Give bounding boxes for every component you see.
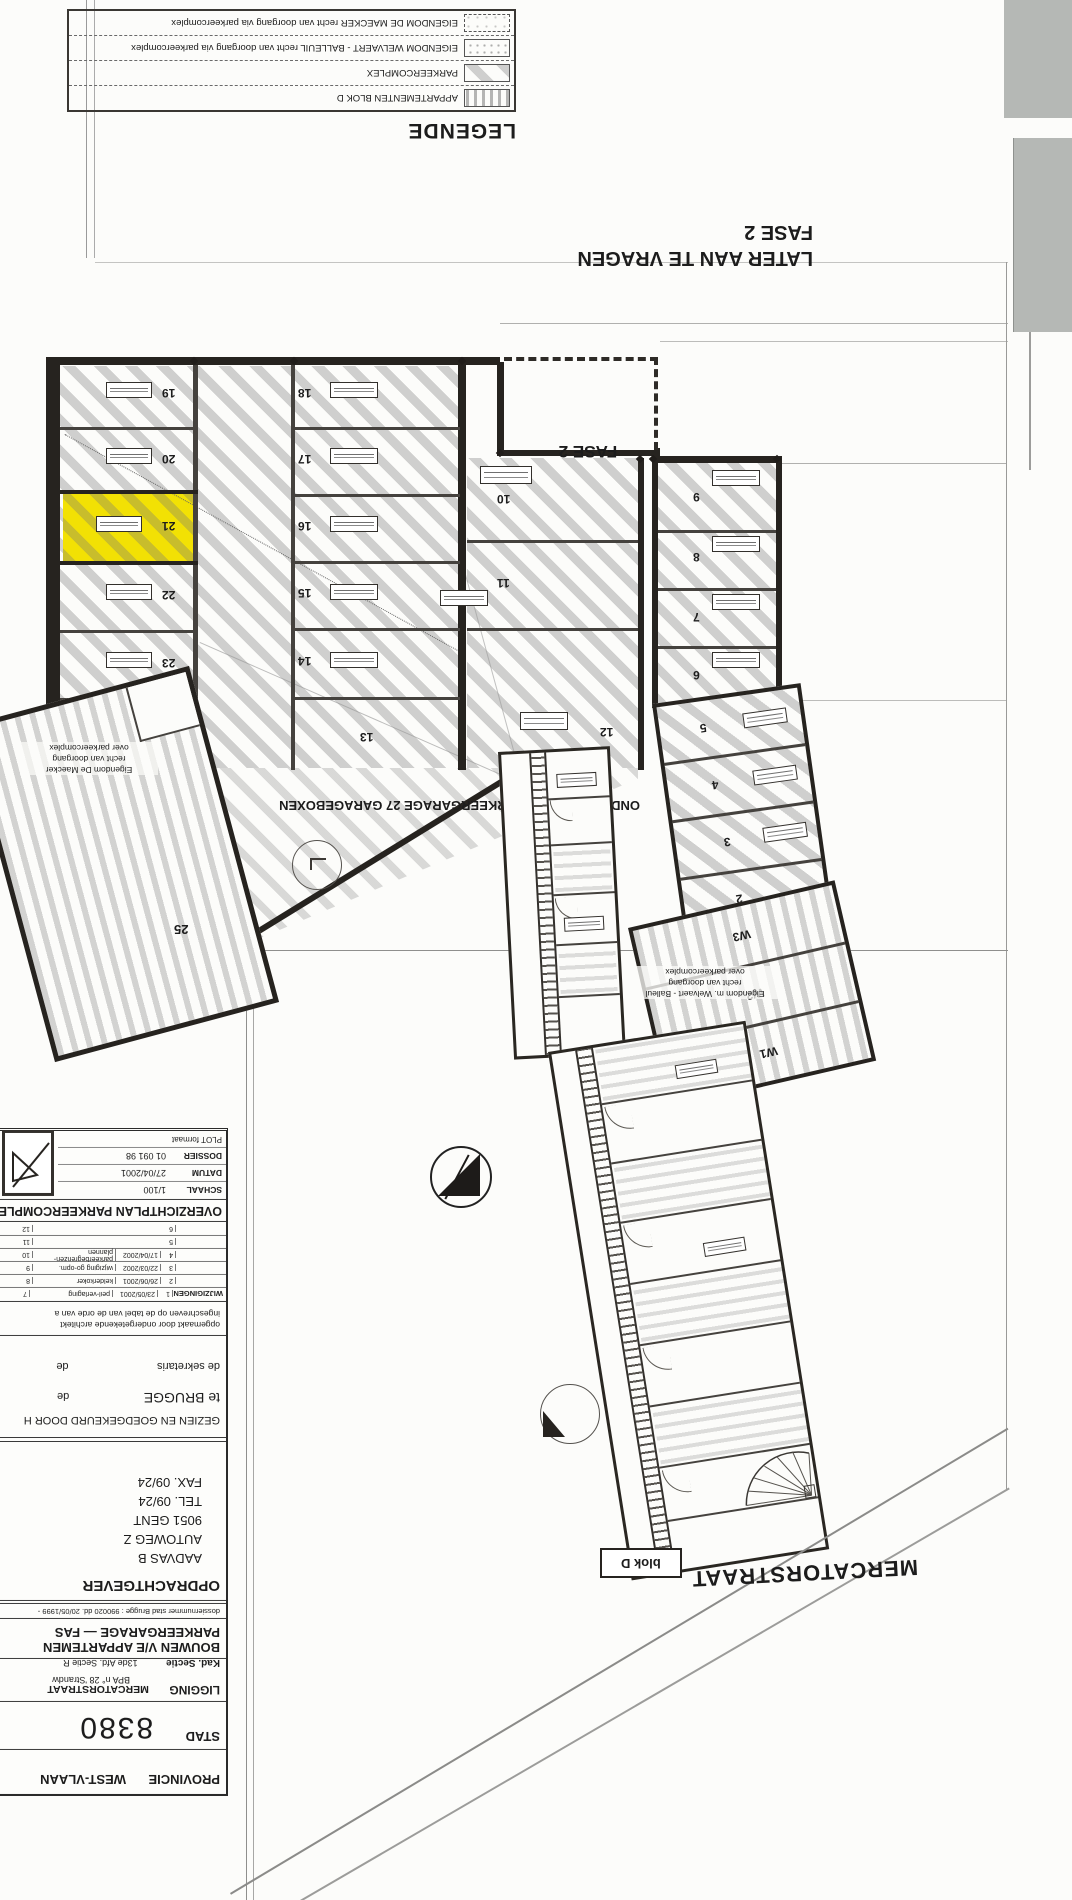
area-label-chip <box>330 652 378 668</box>
rev-n2: 7 <box>13 1291 30 1298</box>
opdr-line: 9051 GENT <box>0 1511 202 1530</box>
wall <box>497 362 504 454</box>
box-number: 20 <box>162 452 175 466</box>
rev-date: 23/05/2001 <box>113 1291 158 1298</box>
partition <box>60 630 198 633</box>
legend: LEGENDE APPARTEMENTEN BLOK D PARKEERCOMP… <box>64 2 516 142</box>
schaal-label: SCHAAL <box>166 1185 226 1195</box>
box-number: 6 <box>693 668 700 682</box>
info-rows: SCHAAL 1/100 DATUM 27/04/2001 DOSSIER 01… <box>58 1133 226 1198</box>
rev-desc: parkeerbegrenzen-plannen <box>33 1248 116 1262</box>
box-number: 25 <box>174 922 188 937</box>
wall <box>652 456 782 463</box>
box-number: 8 <box>693 550 700 564</box>
door-arc <box>662 1466 692 1496</box>
partition <box>293 561 460 564</box>
legend-label: EIGENDOM DE MAECKER recht van doorgang v… <box>171 18 458 29</box>
north-arrow-icon <box>430 1146 492 1208</box>
rev-n: 2 <box>161 1278 176 1285</box>
box-number: 23 <box>162 656 175 670</box>
rev-desc: kelderkoker <box>33 1278 116 1285</box>
provincie-value: WEST-VLAAN <box>40 1772 126 1787</box>
scanned-site-plan: LEGENDE APPARTEMENTEN BLOK D PARKEERCOMP… <box>0 0 1072 1900</box>
area-label-chip <box>106 382 152 398</box>
area-label-chip <box>712 594 760 610</box>
wall <box>776 456 782 708</box>
project-title: BOUWEN V/E APPARTEMEN PARKEERGARAGE — FA… <box>0 1625 220 1655</box>
stad-value: 8380 <box>78 1711 153 1744</box>
garage-area <box>658 463 776 706</box>
area-label-chip <box>712 470 760 486</box>
eigendom-welvaert-note: Eigendom m. Welvaert - Balleul recht van… <box>630 966 780 999</box>
area-label-chip <box>556 772 597 788</box>
dossier-value: 01 091 98 <box>126 1151 166 1161</box>
rev-n2: 10 <box>16 1252 33 1259</box>
legend-label: APPARTEMENTEN BLOK D <box>337 93 458 104</box>
partition <box>293 427 460 430</box>
opdr-line: TEL. 09/24 <box>0 1492 202 1511</box>
note-line: recht van doorgang <box>20 753 158 764</box>
corridor-lower <box>548 1021 829 1581</box>
pattern-swatch-maecker <box>464 14 510 32</box>
partition <box>293 628 460 631</box>
opdr-line: FAX. 09/24 <box>0 1473 202 1492</box>
legend-label: EIGENDOM WELVAERT - BALLEUIL recht van d… <box>131 43 458 54</box>
partition <box>293 697 460 700</box>
datum-value: 27/04/2001 <box>121 1168 166 1178</box>
approval-row: de sekretaris de <box>0 1358 226 1376</box>
partition <box>60 427 198 430</box>
spiral-stair <box>734 1439 820 1510</box>
area-label-chip <box>712 536 760 552</box>
partition <box>60 490 198 494</box>
dossiernummer: dossiernummer stad Brugge : 990020 dd. 2… <box>0 1607 220 1616</box>
area-label-chip <box>106 652 152 668</box>
area-label-chip <box>330 584 378 600</box>
datum-label: DATUM <box>166 1168 226 1178</box>
pattern-swatch-blok-d <box>464 89 510 107</box>
survey-line <box>660 341 1008 342</box>
revisions-table: WIJZIGINGEN 1 23/05/2001 peil-verlaging … <box>0 1224 226 1300</box>
eigendom-maecker-note: Eigendom De Maecker recht van doorgang o… <box>20 742 158 775</box>
note-line: Eigendom m. Welvaert - Balleul <box>630 988 780 999</box>
door-arc <box>604 1103 634 1133</box>
area-label-chip <box>703 1237 747 1257</box>
area-label-chip <box>564 916 605 932</box>
area-label-chip <box>330 448 378 464</box>
wall <box>46 357 500 365</box>
kad-value: 13de Afd. Sectie R <box>63 1658 138 1668</box>
note-line: over parkeercomplex <box>630 966 780 977</box>
box-number: 10 <box>497 492 510 506</box>
wijzigingen-label: WIJZIGINGEN <box>173 1290 226 1299</box>
later-note-line2: FASE 2 <box>518 219 813 245</box>
partition <box>467 540 638 543</box>
partition <box>467 628 638 631</box>
survey-line <box>500 323 1008 324</box>
drawing-title: OVERZICHTPLAN PARKEERCOMPLEX <box>0 1204 222 1218</box>
stad-row: STAD 8380 <box>0 1710 226 1744</box>
door-arc <box>642 1344 672 1374</box>
project-line1: BOUWEN V/E APPARTEMEN <box>0 1640 220 1655</box>
rev-date: 26/06/2001 <box>116 1278 161 1285</box>
partition <box>658 646 776 649</box>
survey-line <box>782 463 1006 464</box>
legend-title: LEGENDE <box>64 118 516 142</box>
opdrachtgever-address: AADVAS B AUTOWEG Z 9051 GENT TEL. 09/24 … <box>0 1473 202 1568</box>
architect-logo <box>2 1130 54 1196</box>
area-label-chip <box>440 590 488 606</box>
fase2-plan-label: FASE 2 <box>536 441 640 461</box>
door-arc <box>623 1221 653 1251</box>
scan-artifact <box>1004 0 1072 118</box>
stad-label: STAD <box>186 1729 220 1744</box>
box-number: 22 <box>162 588 175 602</box>
rev-date: 22/03/2002 <box>116 1265 161 1272</box>
partition <box>658 530 776 533</box>
partition <box>293 494 460 497</box>
box-number: 16 <box>298 519 311 533</box>
survey-line <box>782 700 1006 701</box>
opdrachtgever-label: OPDRACHTGEVER <box>0 1577 220 1594</box>
blok-d-text: blok D <box>621 1556 661 1571</box>
rev-date: 17/04/2002 <box>116 1252 161 1259</box>
legend-label: PARKEERCOMPLEX <box>367 68 458 79</box>
rev-n: 4 <box>161 1252 176 1259</box>
wall <box>458 365 466 770</box>
rev-desc: peil-verlaging <box>30 1291 113 1298</box>
provincie-label: PROVINCIE <box>148 1772 220 1787</box>
partition <box>658 588 776 591</box>
survey-line <box>1029 332 1031 470</box>
corridor-upper <box>498 746 626 1059</box>
rev-desc: wijziging go-opm. <box>33 1265 116 1272</box>
bpa-line: BPA n° 28 'Strandw <box>0 1675 130 1685</box>
rev-n2: 8 <box>16 1278 33 1285</box>
rev-n2: 11 <box>16 1239 33 1246</box>
area-label-chip <box>96 516 142 532</box>
box-number: 14 <box>298 654 311 668</box>
approval-line: GEZIEN EN GOEDGEKEURD DOOR H <box>0 1414 220 1426</box>
pattern-swatch-parkeercomplex <box>464 64 510 82</box>
detail-mark <box>310 858 326 870</box>
box-number: 17 <box>298 452 311 466</box>
dossier-label: DOSSIER <box>166 1151 226 1161</box>
box-number: 19 <box>162 386 175 400</box>
wall <box>638 458 644 770</box>
rev-n: 6 <box>161 1226 176 1233</box>
box-number: 9 <box>693 490 700 504</box>
scan-artifact <box>1013 138 1072 332</box>
project-line2: PARKEERGARAGE — FAS <box>0 1625 220 1640</box>
wall <box>652 456 658 708</box>
box-number: 11 <box>497 576 510 590</box>
note-line: over parkeercomplex <box>20 742 158 753</box>
note-line: ingeschreven op de tabel van de orde van… <box>0 1308 220 1319</box>
opdr-line: AADVAS B <box>0 1549 202 1568</box>
approval-row: te BRUGGE de <box>0 1388 226 1406</box>
later-note: LATER AAN TE VRAGEN FASE 2 <box>518 213 813 271</box>
area-label-chip <box>106 448 152 464</box>
box-number: 7 <box>693 610 700 624</box>
area-label-chip <box>330 516 378 532</box>
opdr-line: AUTOWEG Z <box>0 1530 202 1549</box>
sekretaris-label: de sekretaris <box>157 1360 220 1372</box>
partition <box>60 561 198 565</box>
de-label: de <box>57 1390 69 1402</box>
later-note-line1: LATER AAN TE VRAGEN <box>518 245 813 271</box>
box-number: 13 <box>360 730 373 744</box>
area-label-chip <box>520 712 568 730</box>
box-number: 18 <box>298 386 311 400</box>
street-edge-line <box>246 952 247 1900</box>
wall <box>291 365 295 770</box>
legend-row: APPARTEMENTEN BLOK D <box>69 86 514 110</box>
rev-n: 3 <box>161 1265 176 1272</box>
legend-row: EIGENDOM WELVAERT - BALLEUIL recht van d… <box>69 36 514 61</box>
title-block: PROVINCIE WEST-VLAAN STAD 8380 LIGGING M… <box>0 1128 228 1796</box>
box-number: 12 <box>600 725 613 739</box>
area-label-chip <box>712 652 760 668</box>
rev-n: 1 <box>158 1291 173 1298</box>
area-label-chip <box>106 584 152 600</box>
legend-row: PARKEERCOMPLEX <box>69 61 514 86</box>
note-line: Eigendom De Maecker <box>20 764 158 775</box>
rev-n2: 12 <box>16 1226 33 1233</box>
box-number: 21 <box>162 519 175 533</box>
box-number: 15 <box>298 586 311 600</box>
rev-n: 5 <box>161 1239 176 1246</box>
area-label-chip <box>480 466 532 484</box>
street-edge-line <box>253 952 254 1900</box>
de-label: de <box>56 1360 68 1372</box>
legend-row: EIGENDOM DE MAECKER recht van doorgang v… <box>69 11 514 36</box>
survey-circle <box>540 1384 600 1444</box>
door-arc <box>550 799 573 822</box>
rev-n2: 9 <box>16 1265 33 1272</box>
area-label-chip <box>330 382 378 398</box>
legend-table: APPARTEMENTEN BLOK D PARKEERCOMPLEX EIGE… <box>67 9 516 112</box>
ligging-label: LIGGING <box>169 1683 220 1697</box>
architect-note: opgemaakt door ondergetekende architekt … <box>0 1308 220 1330</box>
parcel-line <box>1006 262 1007 1490</box>
pattern-swatch-welvaert <box>464 39 510 57</box>
note-line: opgemaakt door ondergetekende architekt <box>0 1319 220 1330</box>
te-brugge: te BRUGGE <box>144 1390 220 1406</box>
plot-label: PLOT formaat <box>172 1136 226 1145</box>
provincie-row: PROVINCIE WEST-VLAAN <box>0 1770 226 1788</box>
note-line: recht van doorgang <box>630 977 780 988</box>
fase2-zone <box>504 357 658 450</box>
schaal-value: 1/100 <box>143 1185 166 1195</box>
blok-d-label: blok D <box>600 1548 682 1578</box>
